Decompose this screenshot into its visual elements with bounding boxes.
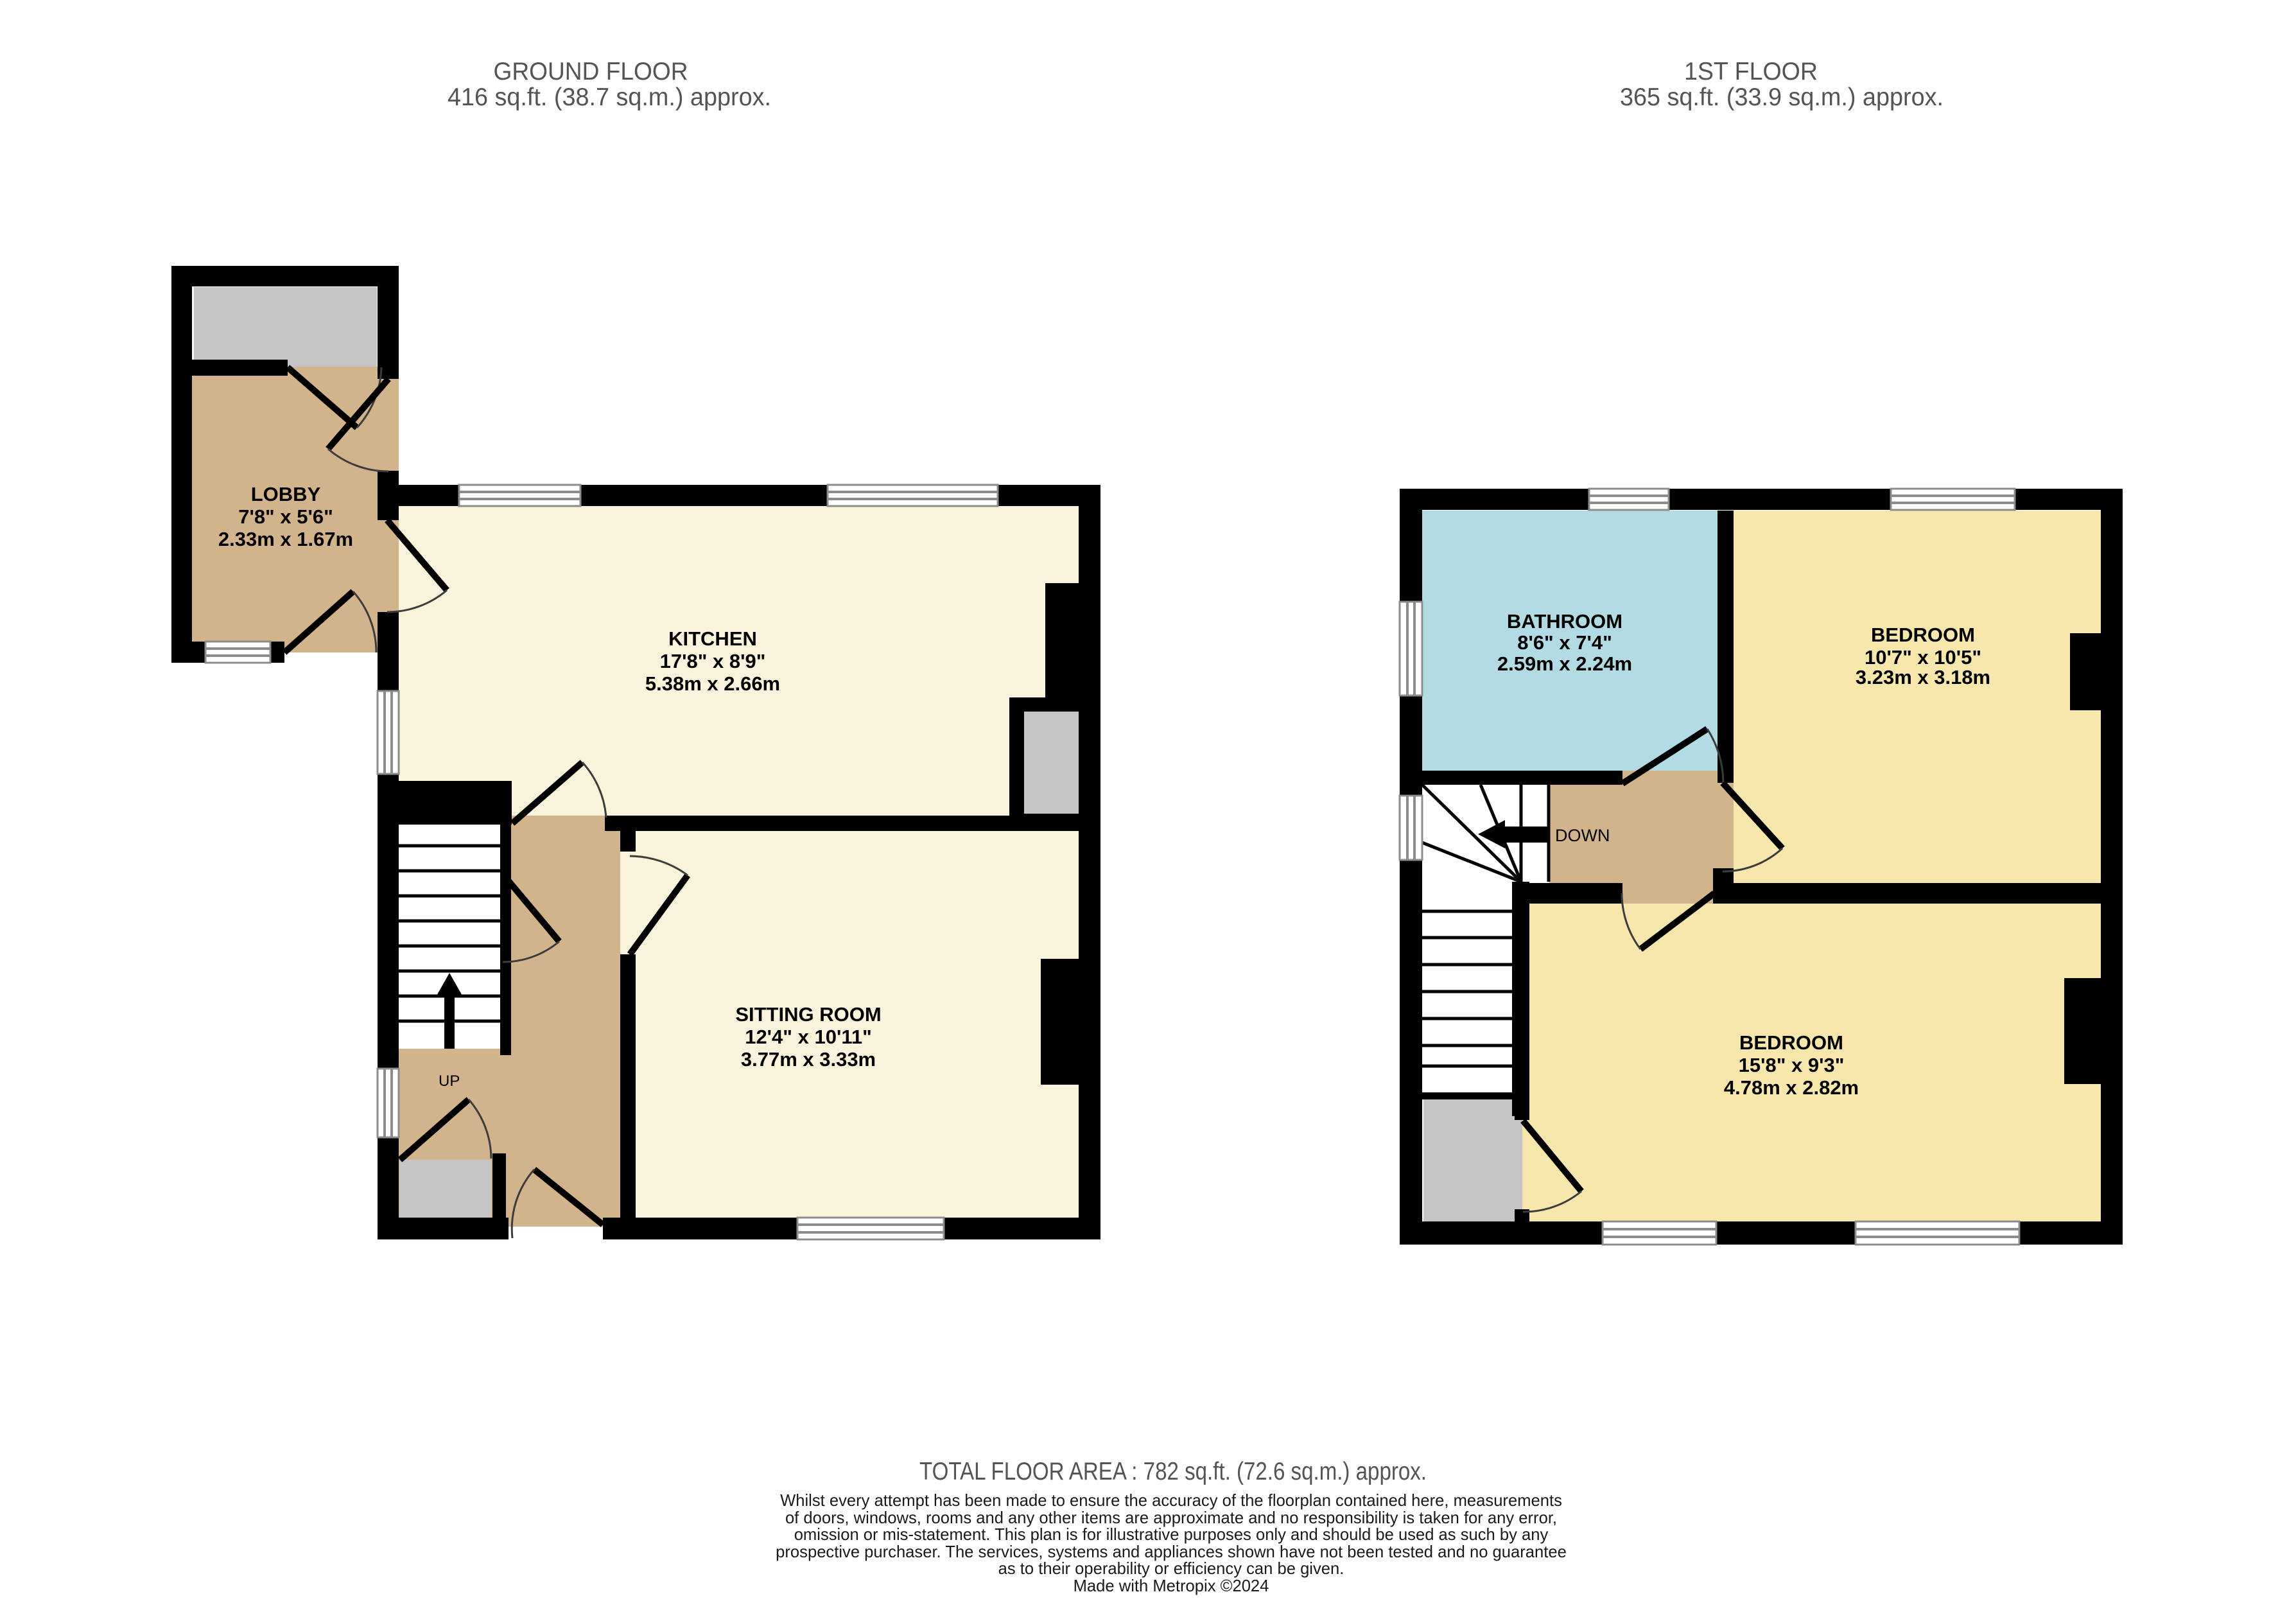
svg-text:BEDROOM: BEDROOM [1871, 624, 1975, 646]
svg-text:1ST FLOOR: 1ST FLOOR [1684, 58, 1818, 85]
svg-text:as to their operability or eff: as to their operability or efficiency ca… [998, 1560, 1344, 1578]
svg-text:365 sq.ft. (33.9 sq.m.) approx: 365 sq.ft. (33.9 sq.m.) approx. [1620, 83, 1944, 111]
svg-text:UP: UP [439, 1072, 460, 1090]
svg-text:3.23m x 3.18m: 3.23m x 3.18m [1856, 666, 1990, 688]
svg-text:prospective purchaser. The ser: prospective purchaser. The services, sys… [776, 1543, 1567, 1561]
svg-text:10'7" x 10'5": 10'7" x 10'5" [1865, 646, 1981, 669]
svg-text:Made with Metropix ©2024: Made with Metropix ©2024 [1074, 1577, 1269, 1595]
svg-text:416 sq.ft. (38.7 sq.m.) approx: 416 sq.ft. (38.7 sq.m.) approx. [448, 83, 771, 111]
svg-text:KITCHEN: KITCHEN [668, 627, 757, 650]
svg-text:DOWN: DOWN [1555, 826, 1610, 845]
svg-text:2.59m x 2.24m: 2.59m x 2.24m [1497, 652, 1632, 675]
svg-text:LOBBY: LOBBY [251, 483, 321, 505]
svg-text:17'8" x 8'9": 17'8" x 8'9" [660, 650, 766, 672]
svg-text:8'6" x 7'4": 8'6" x 7'4" [1517, 631, 1612, 654]
svg-text:SITTING ROOM: SITTING ROOM [735, 1003, 881, 1026]
svg-text:15'8" x 9'3": 15'8" x 9'3" [1739, 1054, 1845, 1076]
svg-text:BATHROOM: BATHROOM [1507, 610, 1622, 633]
svg-text:3.77m x 3.33m: 3.77m x 3.33m [741, 1048, 876, 1071]
svg-text:omission or mis-statement. Thi: omission or mis-statement. This plan is … [794, 1526, 1549, 1544]
svg-text:2.33m x 1.67m: 2.33m x 1.67m [218, 528, 353, 550]
svg-text:Whilst every attempt has been: Whilst every attempt has been made to en… [780, 1492, 1562, 1510]
svg-text:BEDROOM: BEDROOM [1739, 1031, 1843, 1054]
svg-text:4.78m x 2.82m: 4.78m x 2.82m [1724, 1076, 1859, 1099]
svg-text:of doors, windows, rooms and a: of doors, windows, rooms and any other i… [785, 1509, 1557, 1527]
svg-text:GROUND FLOOR: GROUND FLOOR [494, 58, 688, 85]
svg-text:5.38m x 2.66m: 5.38m x 2.66m [645, 672, 780, 695]
svg-text:12'4" x 10'11": 12'4" x 10'11" [745, 1026, 872, 1048]
svg-text:TOTAL FLOOR AREA : 782 sq.ft.: TOTAL FLOOR AREA : 782 sq.ft. (72.6 sq.m… [919, 1458, 1427, 1485]
svg-text:7'8" x 5'6": 7'8" x 5'6" [238, 505, 333, 528]
